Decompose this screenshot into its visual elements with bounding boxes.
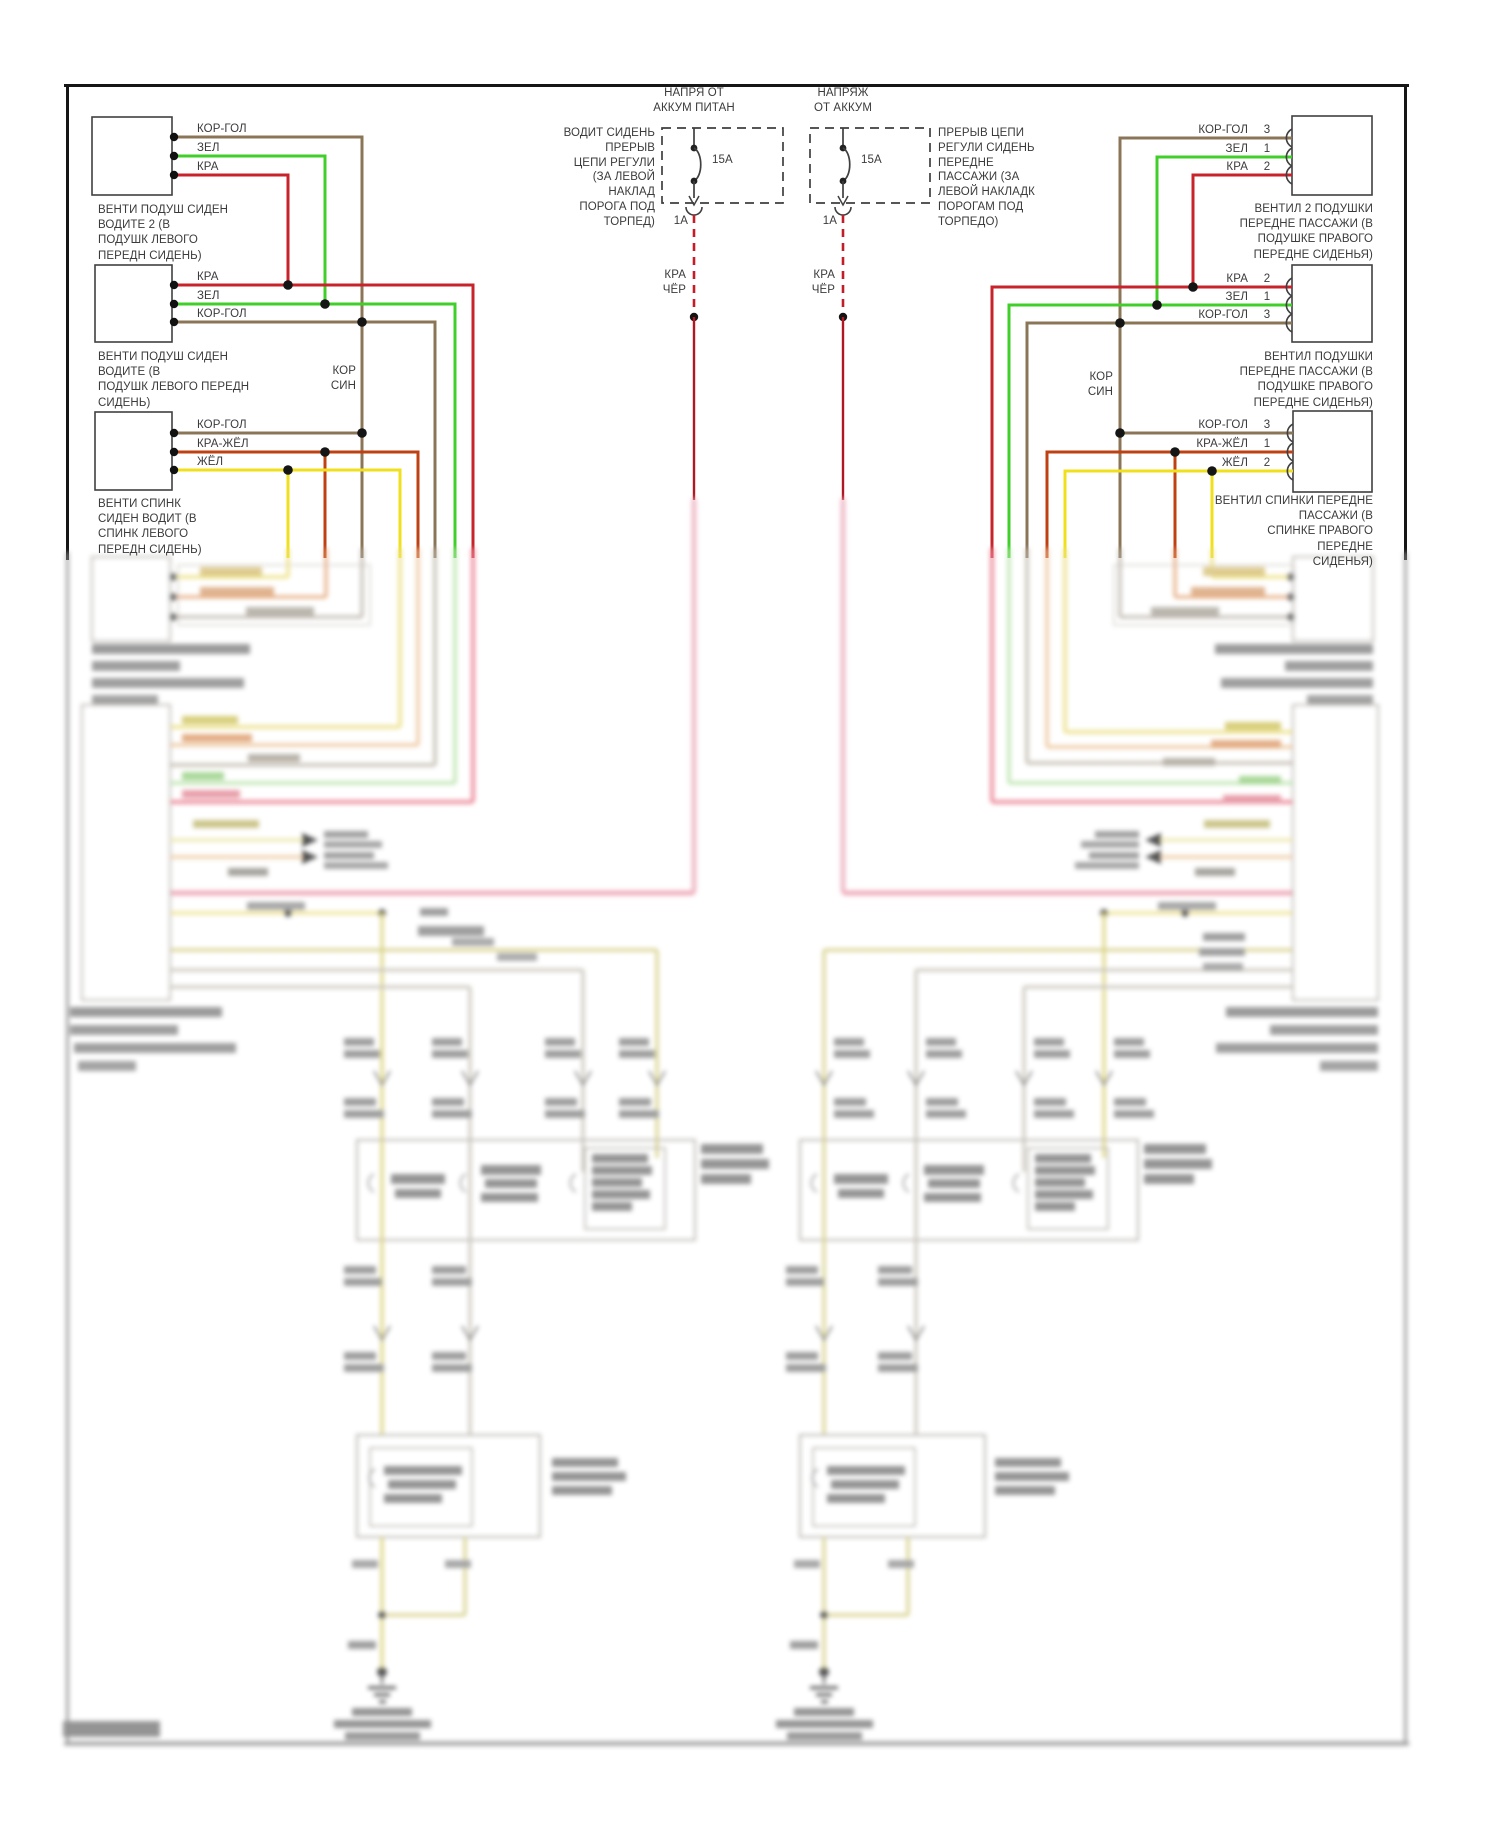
wire-label: КРА (197, 270, 287, 285)
wire-label: КОР-ГОЛ (197, 418, 287, 433)
blurred-content (63, 498, 1409, 1744)
pin-number: 3 (1258, 418, 1276, 433)
fuse-rating: 15А (712, 153, 752, 168)
pin-number: 1 (1258, 142, 1276, 157)
fuse-rating: 15А (861, 153, 901, 168)
pin-number: 1 (1258, 437, 1276, 452)
wire-label: ЖЁЛ (1138, 456, 1248, 471)
component-caption: ВЕНТИЛ 2 ПОДУШКИ ПЕРЕДНЕ ПАССАЖИ (В ПОДУ… (1213, 202, 1373, 263)
barcode-blob (63, 1721, 160, 1737)
fuse-title: НАПРЯ ОТ АККУМ ПИТАН (624, 86, 764, 116)
wire-label: КРА (1138, 160, 1248, 175)
wire-label: КОР-ГОЛ (1138, 418, 1248, 433)
wire-label: КОР-ГОЛ (1138, 123, 1248, 138)
component-caption: ВЕНТИЛ ПОДУШКИ ПЕРЕДНЕ ПАССАЖИ (В ПОДУШК… (1213, 350, 1373, 411)
wire-label: КРА ЧЁР (789, 268, 835, 298)
component-caption: ВЕНТИ ПОДУШ СИДЕН ВОДИТЕ (В ПОДУШК ЛЕВОГ… (98, 350, 263, 411)
wire-label: ЗЕЛ (1138, 142, 1248, 157)
wire-label: КРА (197, 160, 287, 175)
wire-label: КОР-ГОЛ (197, 307, 287, 322)
pin-number: 3 (1258, 308, 1276, 323)
pin-number: 2 (1258, 160, 1276, 175)
fuse-side-text: ПРЕРЫВ ЦЕПИ РЕГУЛИ СИДЕНЬ ПЕРЕДНЕ ПАССАЖ… (938, 126, 1103, 230)
fuse-title: НАПРЯЖ ОТ АККУМ (773, 86, 913, 116)
splice-label: КОР СИН (306, 364, 356, 394)
wire-label: ЗЕЛ (197, 141, 287, 156)
wire-label: ЗЕЛ (1138, 290, 1248, 305)
wire-label: КОР-ГОЛ (197, 122, 287, 137)
component-caption: ВЕНТИ СПИНК СИДЕН ВОДИТ (В СПИНК ЛЕВОГО … (98, 497, 258, 558)
splice-label: КОР СИН (1063, 370, 1113, 400)
component-caption: ВЕНТИ ПОДУШ СИДЕН ВОДИТЕ 2 (В ПОДУШК ЛЕВ… (98, 203, 258, 264)
wire-label: КРА ЧЁР (640, 268, 686, 298)
pin-number: 2 (1258, 272, 1276, 287)
wire-label: ЖЁЛ (197, 455, 287, 470)
wire-label: КРА-ЖЁЛ (197, 437, 287, 452)
branch-rating: 1А (652, 214, 688, 229)
wire-label: КРА (1138, 272, 1248, 287)
wire-label: ЗЕЛ (197, 289, 287, 304)
wire-label: КОР-ГОЛ (1138, 308, 1248, 323)
fuse-side-text: ВОДИТ СИДЕНЬ ПРЕРЫВ ЦЕПИ РЕГУЛИ (ЗА ЛЕВО… (497, 126, 655, 230)
wire-label: КРА-ЖЁЛ (1138, 437, 1248, 452)
wiring-diagram-page: КОР-ГОЛ ЗЕЛ КРА ВЕНТИ ПОДУШ СИДЕН ВОДИТЕ… (0, 0, 1500, 1828)
branch-rating: 1А (801, 214, 837, 229)
pin-number: 3 (1258, 123, 1276, 138)
pin-number: 2 (1258, 456, 1276, 471)
pin-number: 1 (1258, 290, 1276, 305)
component-caption: ВЕНТИЛ СПИНКИ ПЕРЕДНЕ ПАССАЖИ (В СПИНКЕ … (1213, 494, 1373, 570)
